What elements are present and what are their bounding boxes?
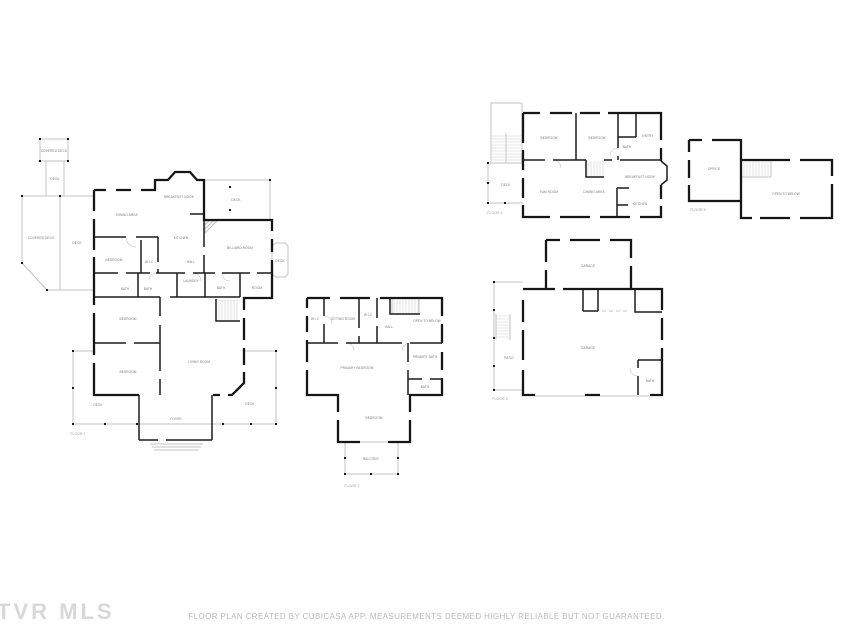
floor-1-plan: COVERED DECKDECKCOVERED DECKDECKDINING A… bbox=[21, 138, 288, 450]
room-label: BATH bbox=[144, 287, 153, 291]
floor-5-labels: OFFICEOPEN TO BELOWFLOOR 5 bbox=[690, 167, 799, 212]
floor-5-stairs bbox=[742, 160, 771, 177]
floor-2-door-arcs bbox=[324, 316, 410, 351]
room-label: BATH bbox=[121, 287, 130, 291]
room-label: DINING AREA bbox=[116, 213, 138, 217]
floor-2-labels: W.I.CSITTING ROOMW.I.CHALLOPEN TO BELOWP… bbox=[311, 313, 441, 488]
room-label: BATH bbox=[217, 286, 226, 290]
room-label: DECK bbox=[72, 241, 82, 245]
room-label: FAM ROOM bbox=[540, 190, 558, 194]
floor-3-plan: GARAGEGARAGEPATIOBATHFLOOR 3 bbox=[492, 240, 662, 401]
room-label: GARAGE bbox=[581, 346, 595, 350]
room-label: DECK bbox=[93, 403, 103, 407]
room-label: COVERED DECK bbox=[28, 236, 55, 240]
cubicasa-disclaimer: FLOOR PLAN CREATED BY CUBICASA APP. MEAS… bbox=[0, 612, 853, 621]
room-label: OPEN TO BELOW bbox=[772, 192, 800, 196]
room-label: DECK bbox=[275, 259, 285, 263]
room-label: W.I.C bbox=[145, 260, 154, 264]
floor-3-stairs-treads bbox=[496, 316, 510, 337]
floor-1-title: FLOOR 1 bbox=[70, 432, 85, 436]
room-label: ENTRY bbox=[642, 134, 654, 138]
floor-4-deck-stairs bbox=[488, 103, 523, 203]
room-label: ROOM bbox=[252, 286, 263, 290]
room-label: PRIMARY BATH bbox=[413, 355, 438, 359]
floor-2-interior-walls bbox=[307, 298, 442, 395]
floorplan-image: COVERED DECKDECKCOVERED DECKDECKDINING A… bbox=[0, 0, 853, 640]
floorplan-canvas: COVERED DECKDECKCOVERED DECKDECKDINING A… bbox=[0, 0, 853, 640]
room-label: LAUNDRY bbox=[183, 279, 200, 283]
room-label: BEDROOM bbox=[540, 136, 557, 140]
room-label: BEDROOM bbox=[365, 416, 382, 420]
floor-1-labels: COVERED DECKDECKCOVERED DECKDECKDINING A… bbox=[28, 149, 286, 436]
room-label: BATH bbox=[646, 379, 655, 383]
floor-3-title: FLOOR 3 bbox=[492, 397, 507, 401]
room-label: LIVING ROOM bbox=[188, 360, 210, 364]
floor-2-title: FLOOR 2 bbox=[344, 484, 359, 488]
floor-5-plan: OFFICEOPEN TO BELOWFLOOR 5 bbox=[689, 140, 832, 218]
floor-5-stairs-treads bbox=[744, 161, 768, 176]
floor-4-plan: BEDROOMBEDROOMBATHENTRYDECKFAM ROOMDININ… bbox=[487, 103, 667, 217]
room-label: W.I.C bbox=[364, 313, 373, 317]
room-label: KITCHEN bbox=[174, 236, 189, 240]
floor-3-door-arcs bbox=[630, 368, 638, 376]
room-label: DINING AREA bbox=[583, 190, 605, 194]
room-label: BATH bbox=[623, 145, 632, 149]
floor-1-stairs-treads bbox=[216, 300, 240, 320]
room-label: BEDROOM bbox=[588, 136, 605, 140]
room-label: DECK bbox=[501, 183, 511, 187]
room-label: BEDROOM bbox=[119, 317, 136, 321]
room-label: HALL bbox=[187, 260, 195, 264]
floor-4-title: FLOOR 4 bbox=[487, 211, 502, 215]
room-label: BREAKFAST NOOK bbox=[625, 175, 656, 179]
room-label: BREAKFAST NOOK bbox=[164, 195, 195, 199]
floor-2-plan: W.I.CSITTING ROOMW.I.CHALLOPEN TO BELOWP… bbox=[307, 298, 442, 488]
floor-5-walls bbox=[689, 140, 832, 218]
room-label: FOYER bbox=[170, 417, 182, 421]
floor-1-deck-posts bbox=[21, 138, 277, 425]
room-label: BALCONY bbox=[363, 457, 380, 461]
floor-5-title: FLOOR 5 bbox=[690, 208, 705, 212]
room-label: BILLIARD ROOM bbox=[227, 246, 253, 250]
room-label: OFFICE bbox=[708, 167, 720, 171]
floor-2-stairs-treads bbox=[394, 299, 418, 313]
room-label: OPEN TO BELOW bbox=[413, 319, 441, 323]
room-label: BEDROOM bbox=[119, 370, 136, 374]
room-label: HALL bbox=[385, 325, 393, 329]
room-label: BEDROOM bbox=[105, 258, 122, 262]
room-label: KITCHEN bbox=[633, 202, 648, 206]
room-label: DECK bbox=[231, 198, 241, 202]
room-label: SITTING ROOM bbox=[331, 317, 356, 321]
room-label: DECK bbox=[245, 402, 255, 406]
room-label: W.I.C bbox=[311, 317, 320, 321]
floor-3-patio bbox=[494, 282, 650, 396]
room-label: GARAGE bbox=[581, 264, 595, 268]
room-label: PATIO bbox=[504, 356, 514, 360]
floor-1-outer-walls bbox=[94, 172, 272, 395]
room-label: COVERED DECK bbox=[41, 149, 68, 153]
room-label: BATH bbox=[421, 385, 430, 389]
room-label: PRIMARY BEDROOM bbox=[341, 366, 374, 370]
room-label: DECK bbox=[50, 177, 60, 181]
